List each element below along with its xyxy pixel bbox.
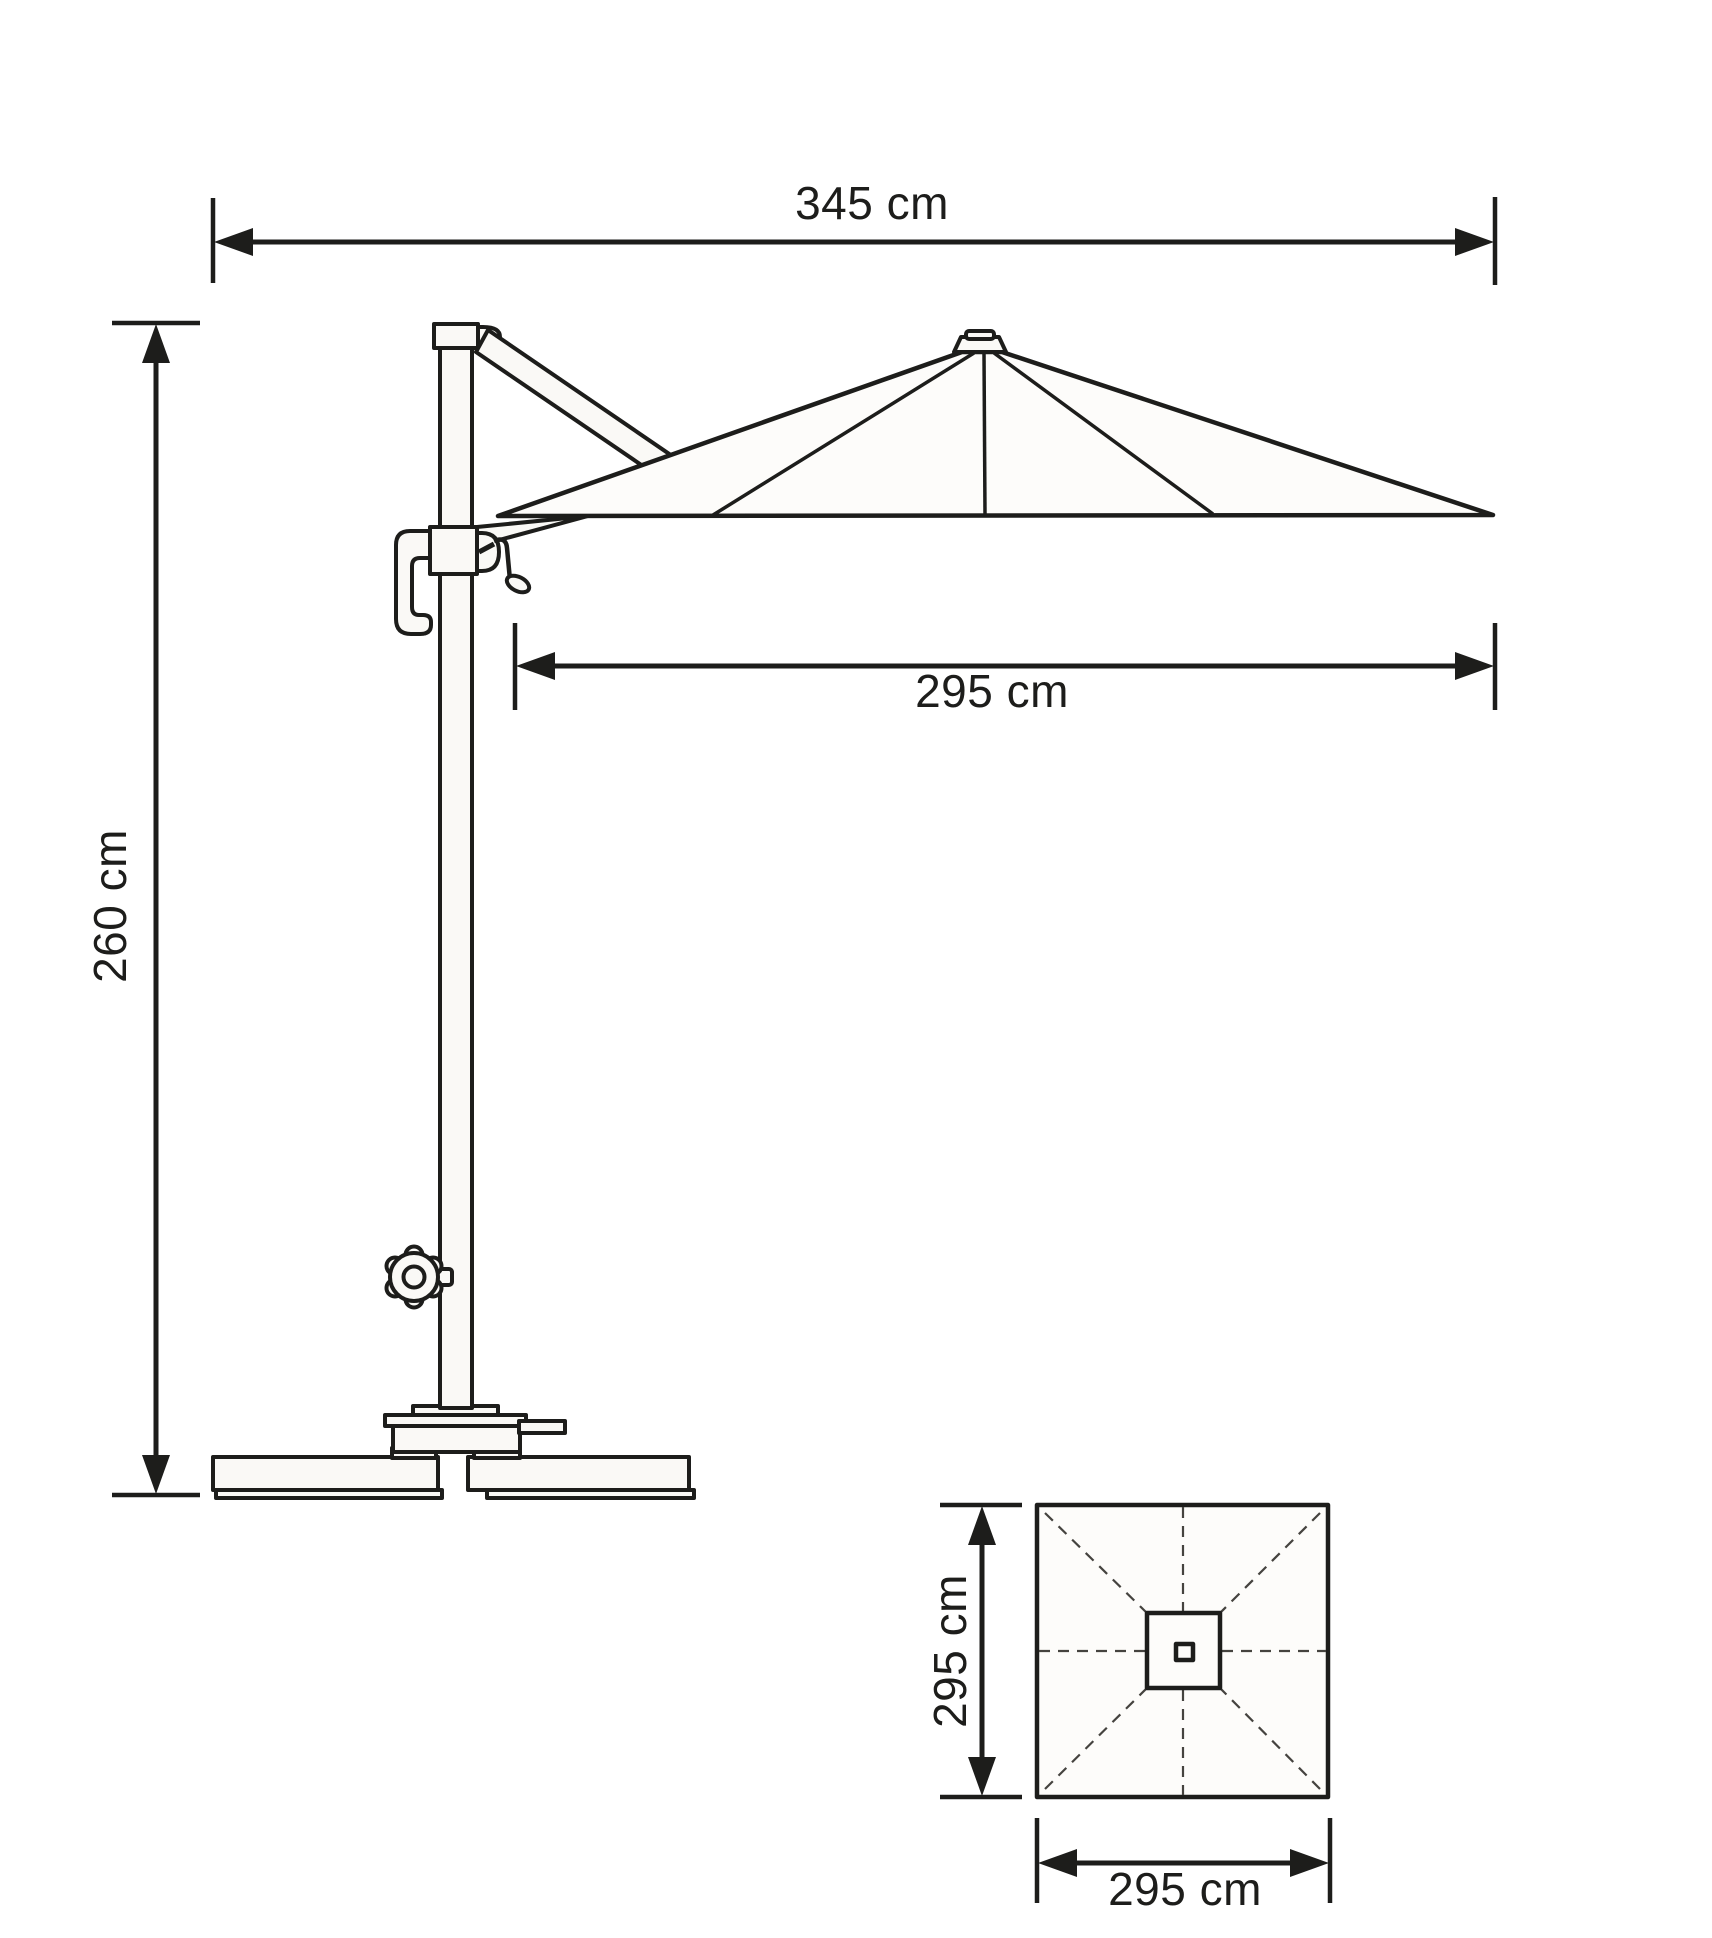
overall-width-label: 345 cm: [795, 177, 949, 229]
drawing-canvas: 345 cm 260 cm: [0, 0, 1712, 1938]
arrowhead-right: [1455, 228, 1494, 256]
arrowhead-left: [1038, 1849, 1077, 1877]
dimension-canopy-width: 295 cm: [515, 623, 1495, 717]
crank-grip: [504, 572, 532, 595]
crank-sleeve: [430, 527, 477, 574]
canopy-rib-center: [984, 353, 985, 514]
dimension-top-view-width: 295 cm: [1037, 1818, 1330, 1915]
finial-top: [966, 331, 994, 339]
knob-center: [404, 1267, 425, 1288]
dimension-top-view-depth: 295 cm: [924, 1505, 1022, 1797]
arrowhead-left: [214, 228, 253, 256]
arrowhead-up: [968, 1506, 996, 1545]
base-slab-left: [213, 1457, 438, 1490]
arrowhead-down: [142, 1455, 170, 1494]
base-slab-right: [468, 1457, 689, 1490]
arrowhead-down: [968, 1757, 996, 1796]
canopy: [498, 331, 1493, 516]
height-label: 260 cm: [84, 829, 136, 983]
arrowhead-right: [1290, 1849, 1329, 1877]
arrowhead-right: [1455, 652, 1494, 680]
parasol-dimension-drawing: 345 cm 260 cm: [0, 0, 1712, 1938]
pole-cap: [434, 324, 478, 348]
pole-section-square: [1176, 1644, 1193, 1660]
pole: [440, 346, 472, 1408]
top-view: 295 cm 295 cm: [924, 1505, 1330, 1915]
crank-assembly: [396, 516, 588, 634]
umbrella-side: 295 cm: [213, 324, 1495, 1498]
rotation-pedal: [519, 1421, 565, 1433]
base-lip-left: [216, 1490, 442, 1498]
base: [213, 1406, 694, 1498]
top-view-depth-label: 295 cm: [924, 1574, 976, 1728]
side-view: 345 cm 260 cm: [84, 177, 1495, 1498]
canopy-width-label: 295 cm: [915, 665, 1069, 717]
dimension-overall-width: 345 cm: [213, 177, 1495, 285]
hand-grip-hook: [396, 531, 431, 634]
top-view-width-label: 295 cm: [1108, 1863, 1262, 1915]
base-lip-right: [487, 1490, 694, 1498]
turntable-body: [393, 1426, 520, 1452]
arrowhead-left: [516, 652, 555, 680]
arrowhead-up: [142, 324, 170, 363]
dimension-height: 260 cm: [84, 323, 200, 1495]
canopy-outline: [498, 352, 1493, 516]
